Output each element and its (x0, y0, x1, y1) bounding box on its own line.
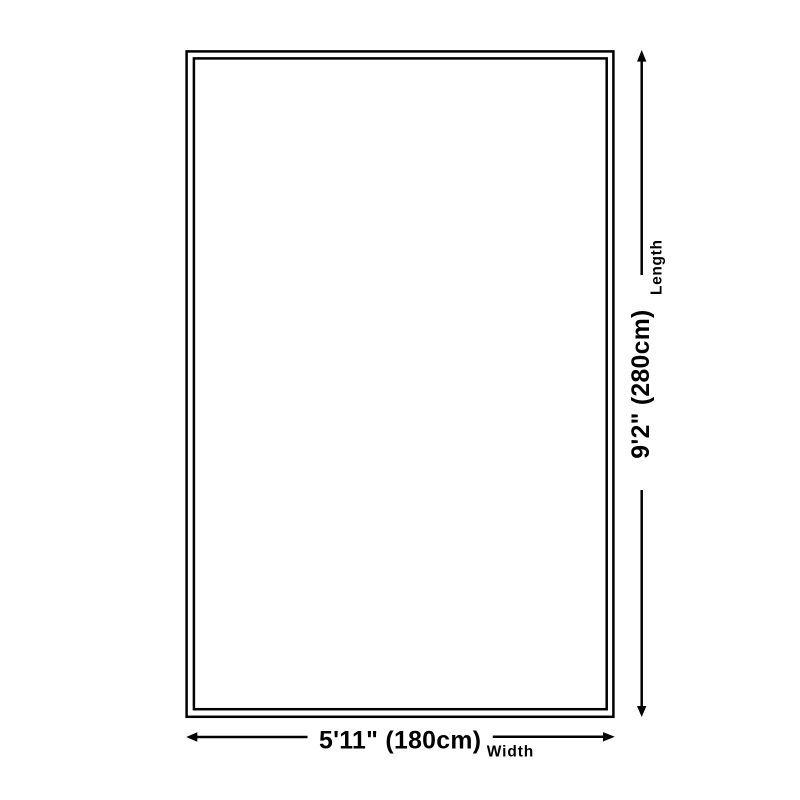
svg-text:5'11" (180cm): 5'11" (180cm) (319, 727, 481, 754)
svg-text:Width: Width (487, 744, 533, 761)
svg-text:9'2" (280cm): 9'2" (280cm) (628, 310, 655, 459)
svg-text:Length: Length (648, 240, 665, 295)
